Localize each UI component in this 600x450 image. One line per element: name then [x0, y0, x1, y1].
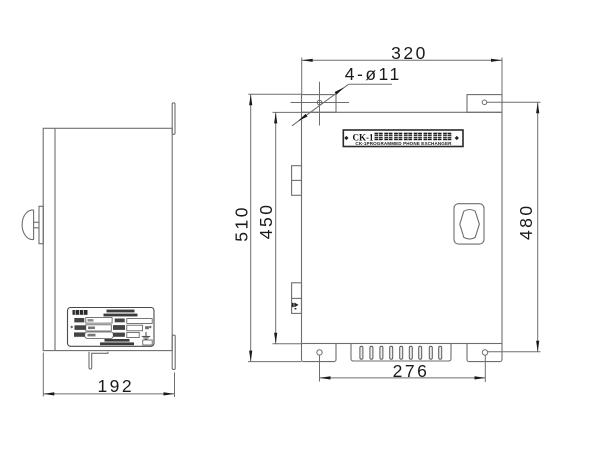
svg-text:320: 320 [391, 43, 428, 63]
svg-text:CK-1PROGRAMMED PHONE EXCHANGER: CK-1PROGRAMMED PHONE EXCHANGER [355, 141, 452, 146]
svg-text:510: 510 [232, 205, 252, 242]
svg-text:4-ø11: 4-ø11 [345, 64, 402, 84]
svg-text:480: 480 [516, 203, 536, 240]
svg-text:450: 450 [256, 203, 276, 240]
svg-text:276: 276 [393, 361, 430, 381]
svg-text:192: 192 [97, 376, 134, 396]
